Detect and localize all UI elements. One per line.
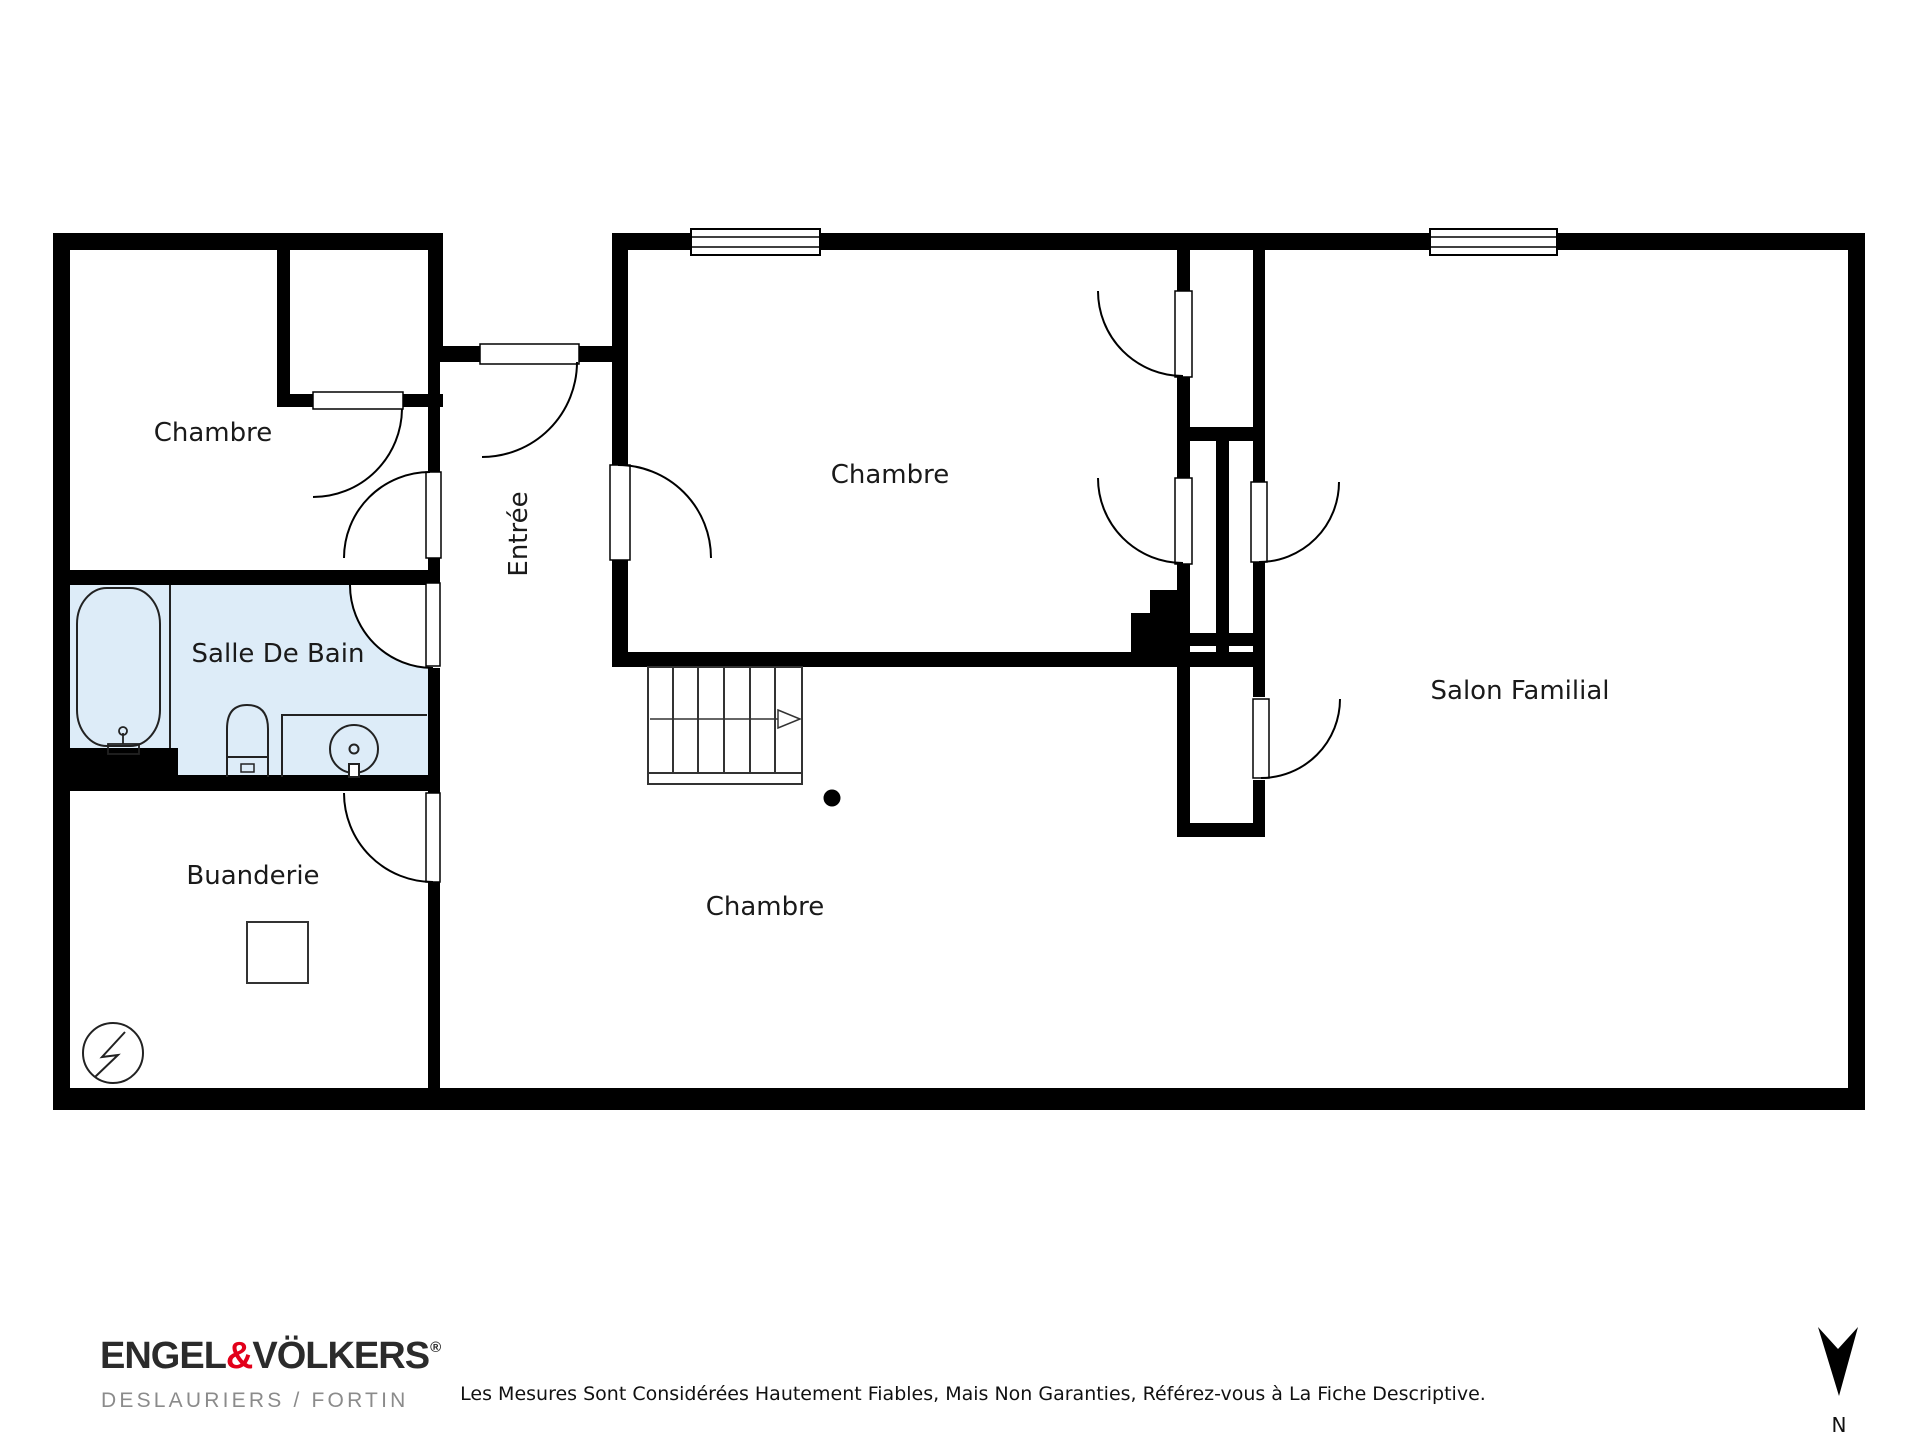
brand-subtitle: DESLAURIERS / FORTIN	[101, 1389, 409, 1412]
label-salon-familial: Salon Familial	[1431, 676, 1610, 706]
brand-ampersand: &	[226, 1335, 253, 1377]
door-panel-bathroom	[426, 583, 440, 666]
wall-outer-left	[53, 233, 70, 1110]
wall-left-rooms-right-a	[428, 668, 440, 793]
label-chambre-top-left: Chambre	[154, 418, 273, 448]
floor-plan-page: Chambre Salle De Bain Buanderie Entrée C…	[0, 0, 1920, 1440]
wall-tl-closet-bottom-b	[403, 394, 443, 407]
brand-registered-mark: ®	[430, 1339, 441, 1356]
wall-corridor-left-a	[1177, 250, 1190, 291]
door-arc-tl-closet	[313, 409, 402, 497]
door-arc-entree-room	[618, 465, 711, 558]
chimney-block-b	[1131, 613, 1150, 667]
brand-logo-text: ENGEL&VÖLKERS®	[100, 1334, 441, 1377]
door-panel-corridor-salon	[1251, 482, 1267, 562]
wall-outer-right	[1848, 233, 1865, 1110]
wall-corridor-cross	[1177, 427, 1265, 441]
disclaimer-text: Les Mesures Sont Considérées Hautement F…	[460, 1383, 1486, 1405]
wall-left-rooms-right-b	[428, 882, 440, 1088]
brand-part1: ENGEL	[100, 1335, 227, 1377]
wall-outer-bottom	[53, 1088, 1865, 1110]
door-panel-buanderie	[426, 793, 440, 882]
brand-part2: VÖLKERS	[252, 1334, 429, 1377]
door-panel-chambre-entree	[426, 472, 441, 558]
wall-topleft-top	[53, 233, 443, 250]
electrical-panel-symbol	[83, 1023, 143, 1083]
door-arc-buanderie	[344, 793, 433, 882]
label-entree: Entrée	[504, 491, 534, 576]
window-midchambre	[691, 229, 820, 255]
door-panel-midchambre-lower	[1175, 478, 1192, 564]
door-panel-entrance	[480, 344, 579, 364]
wall-tl-closet-left	[277, 233, 290, 407]
door-arc-entrance	[482, 362, 577, 457]
wall-entree-left-upper	[428, 362, 440, 472]
wall-entree-mid-upper	[612, 250, 628, 465]
wall-lower-closet-bottom	[1177, 823, 1265, 837]
label-salle-de-bain: Salle De Bain	[192, 639, 365, 669]
wall-entrance-left	[428, 346, 482, 362]
north-arrow-icon	[1818, 1327, 1858, 1396]
door-arc-midchambre-upper	[1098, 291, 1183, 376]
door-panel-tl-closet	[313, 392, 403, 409]
wall-lower-closet-right-a	[1253, 667, 1265, 697]
door-arc-lowercloset-salon	[1261, 699, 1340, 778]
laundry-fixtures	[83, 922, 308, 1083]
door-panel-entree-room	[610, 465, 630, 560]
door-panel-midchambre-upper	[1175, 291, 1192, 377]
wall-bathroom-top	[57, 570, 438, 585]
chimney-block-a	[1150, 590, 1190, 667]
door-arc-midchambre-lower	[1098, 478, 1183, 563]
door-panel-lowercloset-salon	[1253, 699, 1269, 778]
stairs	[648, 667, 802, 784]
wall-lower-closet-left	[1177, 667, 1190, 837]
wall-corridor-right-b	[1253, 562, 1265, 667]
north-label: N	[1832, 1413, 1847, 1437]
north-compass: N	[1818, 1327, 1858, 1437]
column-dot	[824, 790, 841, 807]
door-arc-corridor-salon	[1259, 482, 1339, 562]
wall-corridor-right-a	[1253, 250, 1265, 482]
wall-corridor-closets-bottom	[1177, 633, 1265, 646]
wall-corridor-divider	[1216, 441, 1229, 652]
window-salon	[1430, 229, 1557, 255]
wall-tl-closet-bottom-a	[277, 394, 313, 407]
wall-tlblock-right-upper	[428, 233, 443, 347]
floor-plan-canvas: Chambre Salle De Bain Buanderie Entrée C…	[0, 0, 1920, 1440]
label-chambre-bottom: Chambre	[706, 892, 825, 922]
label-buanderie: Buanderie	[186, 861, 319, 891]
label-chambre-middle: Chambre	[831, 460, 950, 490]
wall-entree-mid-lower	[612, 558, 628, 667]
footer: ENGEL&VÖLKERS® DESLAURIERS / FORTIN Les …	[100, 1327, 1858, 1437]
stairs-landing	[648, 773, 802, 784]
washer-square	[247, 922, 308, 983]
